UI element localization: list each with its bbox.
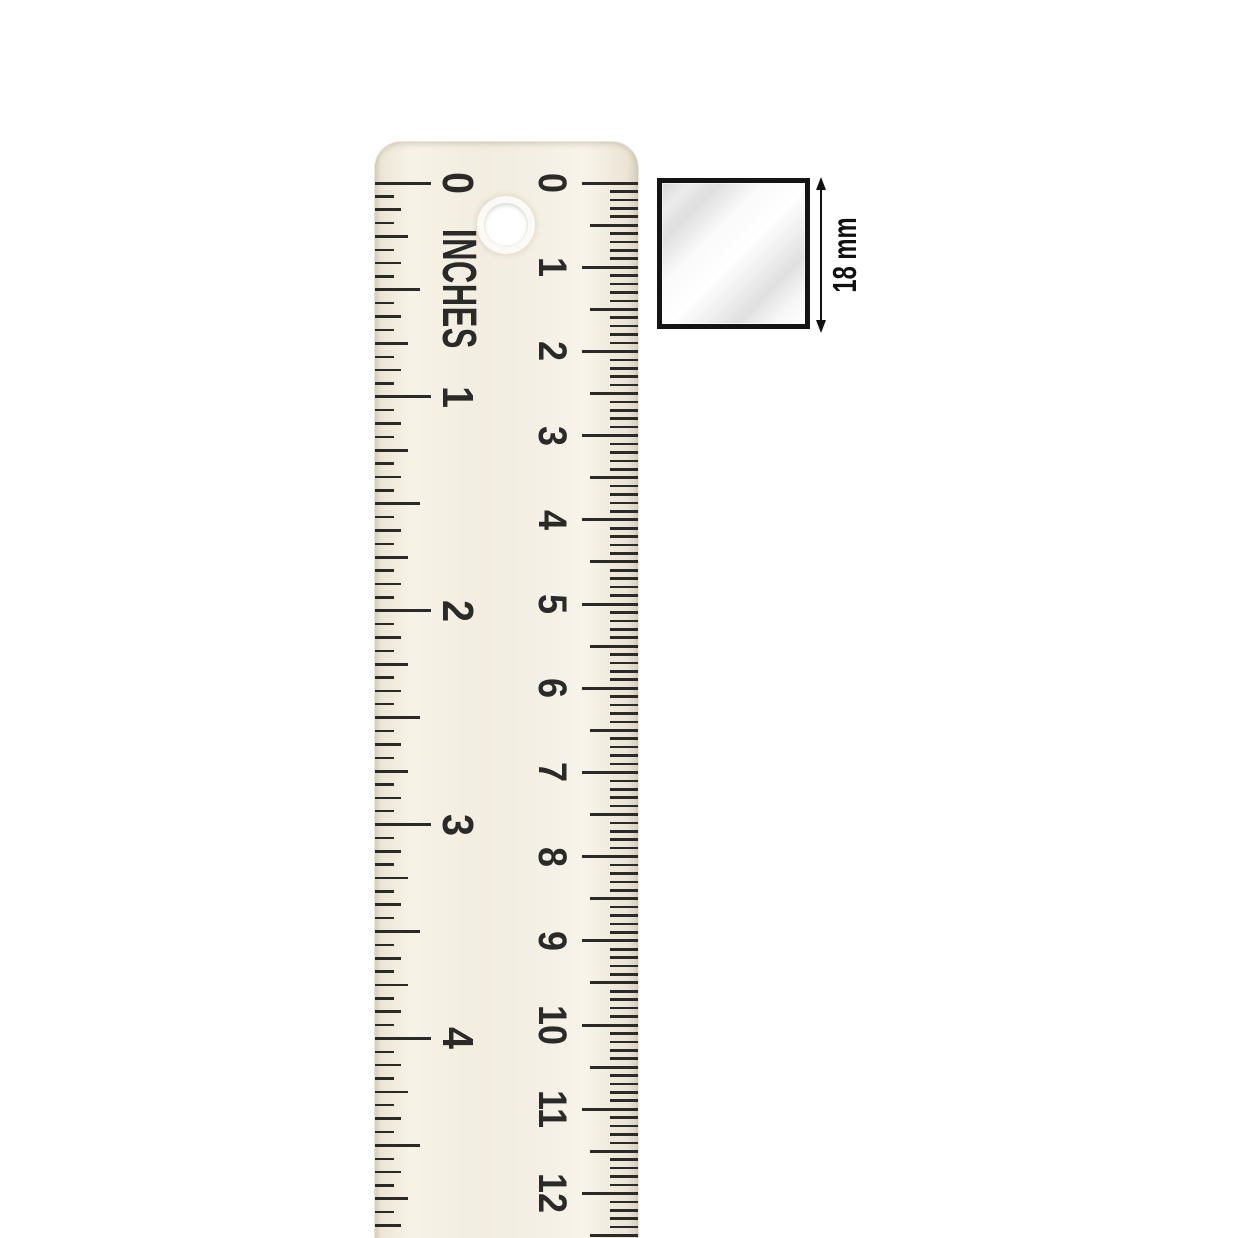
cm-tick bbox=[590, 392, 638, 395]
cm-label: 4 bbox=[522, 493, 582, 547]
inch-tick bbox=[375, 342, 408, 345]
inch-tick bbox=[375, 596, 394, 598]
cm-tick bbox=[610, 291, 638, 294]
cm-tick bbox=[610, 426, 638, 429]
cm-label: 0 bbox=[522, 156, 582, 210]
inch-label: 2 bbox=[427, 584, 487, 638]
cm-tick bbox=[610, 1116, 638, 1119]
cm-tick bbox=[610, 190, 638, 193]
inch-tick bbox=[375, 1104, 394, 1106]
cm-tick bbox=[610, 662, 638, 665]
cm-tick bbox=[590, 897, 638, 900]
dimension-label: 18 mm bbox=[828, 205, 862, 306]
cm-tick bbox=[610, 199, 638, 202]
inch-tick bbox=[375, 716, 420, 719]
inch-tick bbox=[375, 249, 394, 251]
cm-tick bbox=[610, 316, 638, 319]
inch-tick bbox=[375, 1024, 394, 1026]
cm-tick bbox=[610, 788, 638, 791]
cm-tick bbox=[610, 763, 638, 766]
cm-tick bbox=[610, 443, 638, 446]
inch-tick bbox=[375, 636, 401, 639]
cm-tick bbox=[610, 232, 638, 235]
cm-tick bbox=[610, 359, 638, 362]
arrow-line bbox=[820, 186, 823, 324]
cm-tick bbox=[610, 569, 638, 572]
cm-tick bbox=[610, 300, 638, 303]
cm-tick bbox=[610, 241, 638, 244]
inch-tick bbox=[375, 262, 401, 265]
inch-tick bbox=[375, 1211, 394, 1213]
figure: INCHES 012340123456789101112 18 mm bbox=[0, 0, 1238, 1238]
cm-tick bbox=[610, 1091, 638, 1094]
inch-tick bbox=[375, 462, 394, 464]
inch-tick bbox=[375, 1077, 394, 1079]
cm-tick bbox=[610, 620, 638, 623]
inch-tick bbox=[375, 1131, 394, 1133]
cm-tick bbox=[610, 872, 638, 875]
inch-label: 4 bbox=[427, 1011, 487, 1065]
inch-tick bbox=[375, 903, 401, 906]
inch-tick bbox=[375, 208, 401, 211]
inch-tick bbox=[375, 382, 394, 384]
cm-tick bbox=[610, 1032, 638, 1035]
cm-tick bbox=[610, 1167, 638, 1170]
cm-tick bbox=[610, 249, 638, 252]
inch-label: 3 bbox=[427, 798, 487, 852]
cm-tick bbox=[610, 468, 638, 471]
cm-tick bbox=[590, 476, 638, 479]
cm-tick bbox=[610, 796, 638, 799]
inch-tick bbox=[375, 1051, 394, 1053]
cm-tick bbox=[610, 721, 638, 724]
cm-tick bbox=[610, 990, 638, 993]
inch-tick bbox=[375, 502, 420, 505]
cm-tick bbox=[610, 712, 638, 715]
inch-tick bbox=[375, 395, 431, 398]
cm-tick bbox=[610, 257, 638, 260]
inch-tick bbox=[375, 288, 420, 291]
cm-label: 7 bbox=[522, 745, 582, 799]
cm-label: 8 bbox=[522, 830, 582, 884]
cm-tick bbox=[610, 1217, 638, 1220]
cm-tick bbox=[610, 544, 638, 547]
cm-tick bbox=[610, 502, 638, 505]
inch-tick bbox=[375, 369, 401, 372]
arrow-down-icon bbox=[816, 320, 826, 333]
inch-tick bbox=[375, 556, 408, 559]
cm-tick bbox=[582, 182, 638, 185]
inch-tick bbox=[375, 917, 394, 919]
inch-tick bbox=[375, 970, 394, 972]
cm-tick bbox=[610, 384, 638, 387]
cm-tick bbox=[610, 1158, 638, 1161]
cm-tick bbox=[610, 838, 638, 841]
cm-tick bbox=[582, 855, 638, 858]
cm-tick bbox=[610, 931, 638, 934]
cm-tick bbox=[610, 333, 638, 336]
inch-tick bbox=[375, 663, 408, 666]
cm-tick bbox=[582, 1108, 638, 1111]
cm-tick bbox=[582, 939, 638, 942]
inch-tick bbox=[375, 195, 394, 197]
inch-tick bbox=[375, 1184, 394, 1186]
cm-tick bbox=[610, 1209, 638, 1212]
cm-tick bbox=[610, 1175, 638, 1178]
cm-tick bbox=[590, 645, 638, 648]
cm-label: 5 bbox=[522, 577, 582, 631]
cm-tick bbox=[610, 678, 638, 681]
cm-tick bbox=[582, 266, 638, 269]
cm-tick bbox=[610, 1049, 638, 1052]
inch-tick bbox=[375, 302, 394, 304]
cm-tick bbox=[610, 1041, 638, 1044]
inch-tick bbox=[375, 823, 431, 826]
cm-tick bbox=[582, 771, 638, 774]
cm-tick bbox=[610, 485, 638, 488]
inch-tick bbox=[375, 529, 401, 532]
cm-tick bbox=[610, 653, 638, 656]
ruler: INCHES 012340123456789101112 bbox=[375, 142, 638, 1238]
cm-tick bbox=[610, 695, 638, 698]
cm-tick bbox=[610, 636, 638, 639]
cm-tick bbox=[582, 603, 638, 606]
inch-tick bbox=[375, 583, 401, 586]
inch-tick bbox=[375, 930, 420, 933]
cm-tick bbox=[610, 973, 638, 976]
inch-tick bbox=[375, 690, 401, 693]
cm-tick bbox=[590, 1150, 638, 1153]
inch-tick bbox=[375, 770, 408, 773]
inch-tick bbox=[375, 783, 394, 785]
inch-tick bbox=[375, 1117, 401, 1120]
inch-tick bbox=[375, 850, 401, 853]
inch-tick bbox=[375, 609, 431, 612]
cm-tick bbox=[610, 493, 638, 496]
cm-tick bbox=[582, 1024, 638, 1027]
inch-tick bbox=[375, 315, 401, 318]
inch-tick bbox=[375, 543, 394, 545]
cm-tick bbox=[582, 350, 638, 353]
cm-tick bbox=[610, 881, 638, 884]
cm-tick bbox=[582, 1192, 638, 1195]
cm-label: 1 bbox=[522, 240, 582, 294]
inch-tick bbox=[375, 182, 431, 185]
cm-tick bbox=[610, 367, 638, 370]
square-specimen bbox=[657, 178, 810, 329]
inch-tick bbox=[375, 797, 401, 800]
cm-tick bbox=[610, 401, 638, 404]
cm-tick bbox=[590, 308, 638, 311]
cm-tick bbox=[590, 1066, 638, 1069]
cm-tick bbox=[610, 451, 638, 454]
inch-tick bbox=[375, 409, 394, 411]
inch-tick bbox=[375, 222, 394, 224]
cm-tick bbox=[610, 1074, 638, 1077]
cm-tick bbox=[610, 965, 638, 968]
inch-tick bbox=[375, 877, 408, 880]
cm-tick bbox=[610, 535, 638, 538]
inch-tick bbox=[375, 1010, 401, 1013]
cm-tick bbox=[610, 847, 638, 850]
inch-tick bbox=[375, 329, 394, 331]
inch-tick bbox=[375, 1197, 408, 1200]
inch-tick bbox=[375, 1064, 401, 1067]
inch-tick bbox=[375, 944, 394, 946]
cm-tick bbox=[610, 527, 638, 530]
inch-tick bbox=[375, 422, 401, 425]
cm-tick bbox=[610, 375, 638, 378]
cm-tick bbox=[610, 754, 638, 757]
ruler-unit-label: INCHES bbox=[434, 206, 484, 372]
cm-tick bbox=[610, 670, 638, 673]
cm-tick bbox=[610, 1099, 638, 1102]
inch-tick bbox=[375, 569, 394, 571]
inch-tick bbox=[375, 743, 401, 746]
cm-tick bbox=[610, 1125, 638, 1128]
inch-tick bbox=[375, 730, 394, 732]
inch-tick bbox=[375, 810, 394, 812]
cm-tick bbox=[610, 586, 638, 589]
inch-tick bbox=[375, 1158, 394, 1160]
cm-tick bbox=[610, 215, 638, 218]
cm-tick bbox=[610, 283, 638, 286]
cm-tick bbox=[610, 1184, 638, 1187]
inch-tick bbox=[375, 1171, 401, 1174]
cm-tick bbox=[590, 813, 638, 816]
inch-label: 1 bbox=[427, 370, 487, 424]
inch-tick bbox=[375, 489, 394, 491]
cm-tick bbox=[610, 906, 638, 909]
cm-tick bbox=[610, 1142, 638, 1145]
cm-tick bbox=[610, 830, 638, 833]
inch-tick bbox=[375, 837, 394, 839]
cm-tick bbox=[610, 923, 638, 926]
cm-tick bbox=[610, 577, 638, 580]
cm-label: 9 bbox=[522, 914, 582, 968]
cm-tick bbox=[610, 611, 638, 614]
cm-tick bbox=[610, 864, 638, 867]
cm-tick bbox=[610, 342, 638, 345]
cm-tick bbox=[610, 1201, 638, 1204]
cm-tick bbox=[610, 1007, 638, 1010]
inch-tick bbox=[375, 356, 394, 358]
cm-tick bbox=[610, 207, 638, 210]
cm-tick bbox=[610, 956, 638, 959]
cm-tick bbox=[610, 746, 638, 749]
inch-tick bbox=[375, 997, 394, 999]
cm-label: 10 bbox=[522, 998, 582, 1052]
cm-tick bbox=[590, 981, 638, 984]
cm-tick bbox=[610, 510, 638, 513]
cm-tick bbox=[610, 460, 638, 463]
inch-tick bbox=[375, 516, 394, 518]
cm-tick bbox=[590, 560, 638, 563]
cm-tick bbox=[610, 948, 638, 951]
cm-tick bbox=[610, 704, 638, 707]
cm-tick bbox=[610, 1057, 638, 1060]
inch-tick bbox=[375, 449, 408, 452]
cm-label: 3 bbox=[522, 409, 582, 463]
cm-tick bbox=[610, 737, 638, 740]
inch-tick bbox=[375, 1037, 431, 1040]
inch-tick bbox=[375, 623, 394, 625]
inch-tick bbox=[375, 757, 394, 759]
cm-tick bbox=[610, 1015, 638, 1018]
cm-tick bbox=[582, 434, 638, 437]
cm-tick bbox=[610, 1083, 638, 1086]
inch-tick bbox=[375, 1091, 408, 1094]
cm-tick bbox=[610, 325, 638, 328]
cm-label: 11 bbox=[522, 1082, 582, 1136]
cm-label: 2 bbox=[522, 324, 582, 378]
cm-tick bbox=[610, 409, 638, 412]
cm-tick bbox=[610, 780, 638, 783]
cm-tick bbox=[610, 889, 638, 892]
cm-tick bbox=[610, 594, 638, 597]
cm-tick bbox=[590, 729, 638, 732]
inch-tick bbox=[375, 957, 401, 960]
inch-tick bbox=[375, 863, 394, 865]
inch-tick bbox=[375, 476, 401, 479]
inch-tick bbox=[375, 275, 394, 277]
cm-label: 6 bbox=[522, 661, 582, 715]
cm-tick bbox=[610, 822, 638, 825]
inch-tick bbox=[375, 676, 394, 678]
inch-tick bbox=[375, 984, 408, 987]
inch-tick bbox=[375, 890, 394, 892]
inch-tick bbox=[375, 1224, 401, 1227]
inch-tick bbox=[375, 703, 394, 705]
cm-tick bbox=[610, 628, 638, 631]
cm-tick bbox=[610, 552, 638, 555]
cm-label: 12 bbox=[522, 1166, 582, 1220]
cm-tick bbox=[610, 274, 638, 277]
cm-tick bbox=[590, 224, 638, 227]
cm-tick bbox=[610, 1226, 638, 1229]
cm-tick bbox=[610, 417, 638, 420]
inch-tick bbox=[375, 650, 394, 652]
inch-label: 0 bbox=[427, 156, 487, 210]
cm-tick bbox=[582, 687, 638, 690]
inch-tick bbox=[375, 1144, 420, 1147]
cm-tick bbox=[610, 998, 638, 1001]
inch-tick bbox=[375, 436, 394, 438]
cm-tick bbox=[590, 1234, 638, 1237]
cm-tick bbox=[610, 1133, 638, 1136]
cm-tick bbox=[610, 914, 638, 917]
inch-tick bbox=[375, 235, 408, 238]
cm-tick bbox=[582, 518, 638, 521]
cm-tick bbox=[610, 805, 638, 808]
